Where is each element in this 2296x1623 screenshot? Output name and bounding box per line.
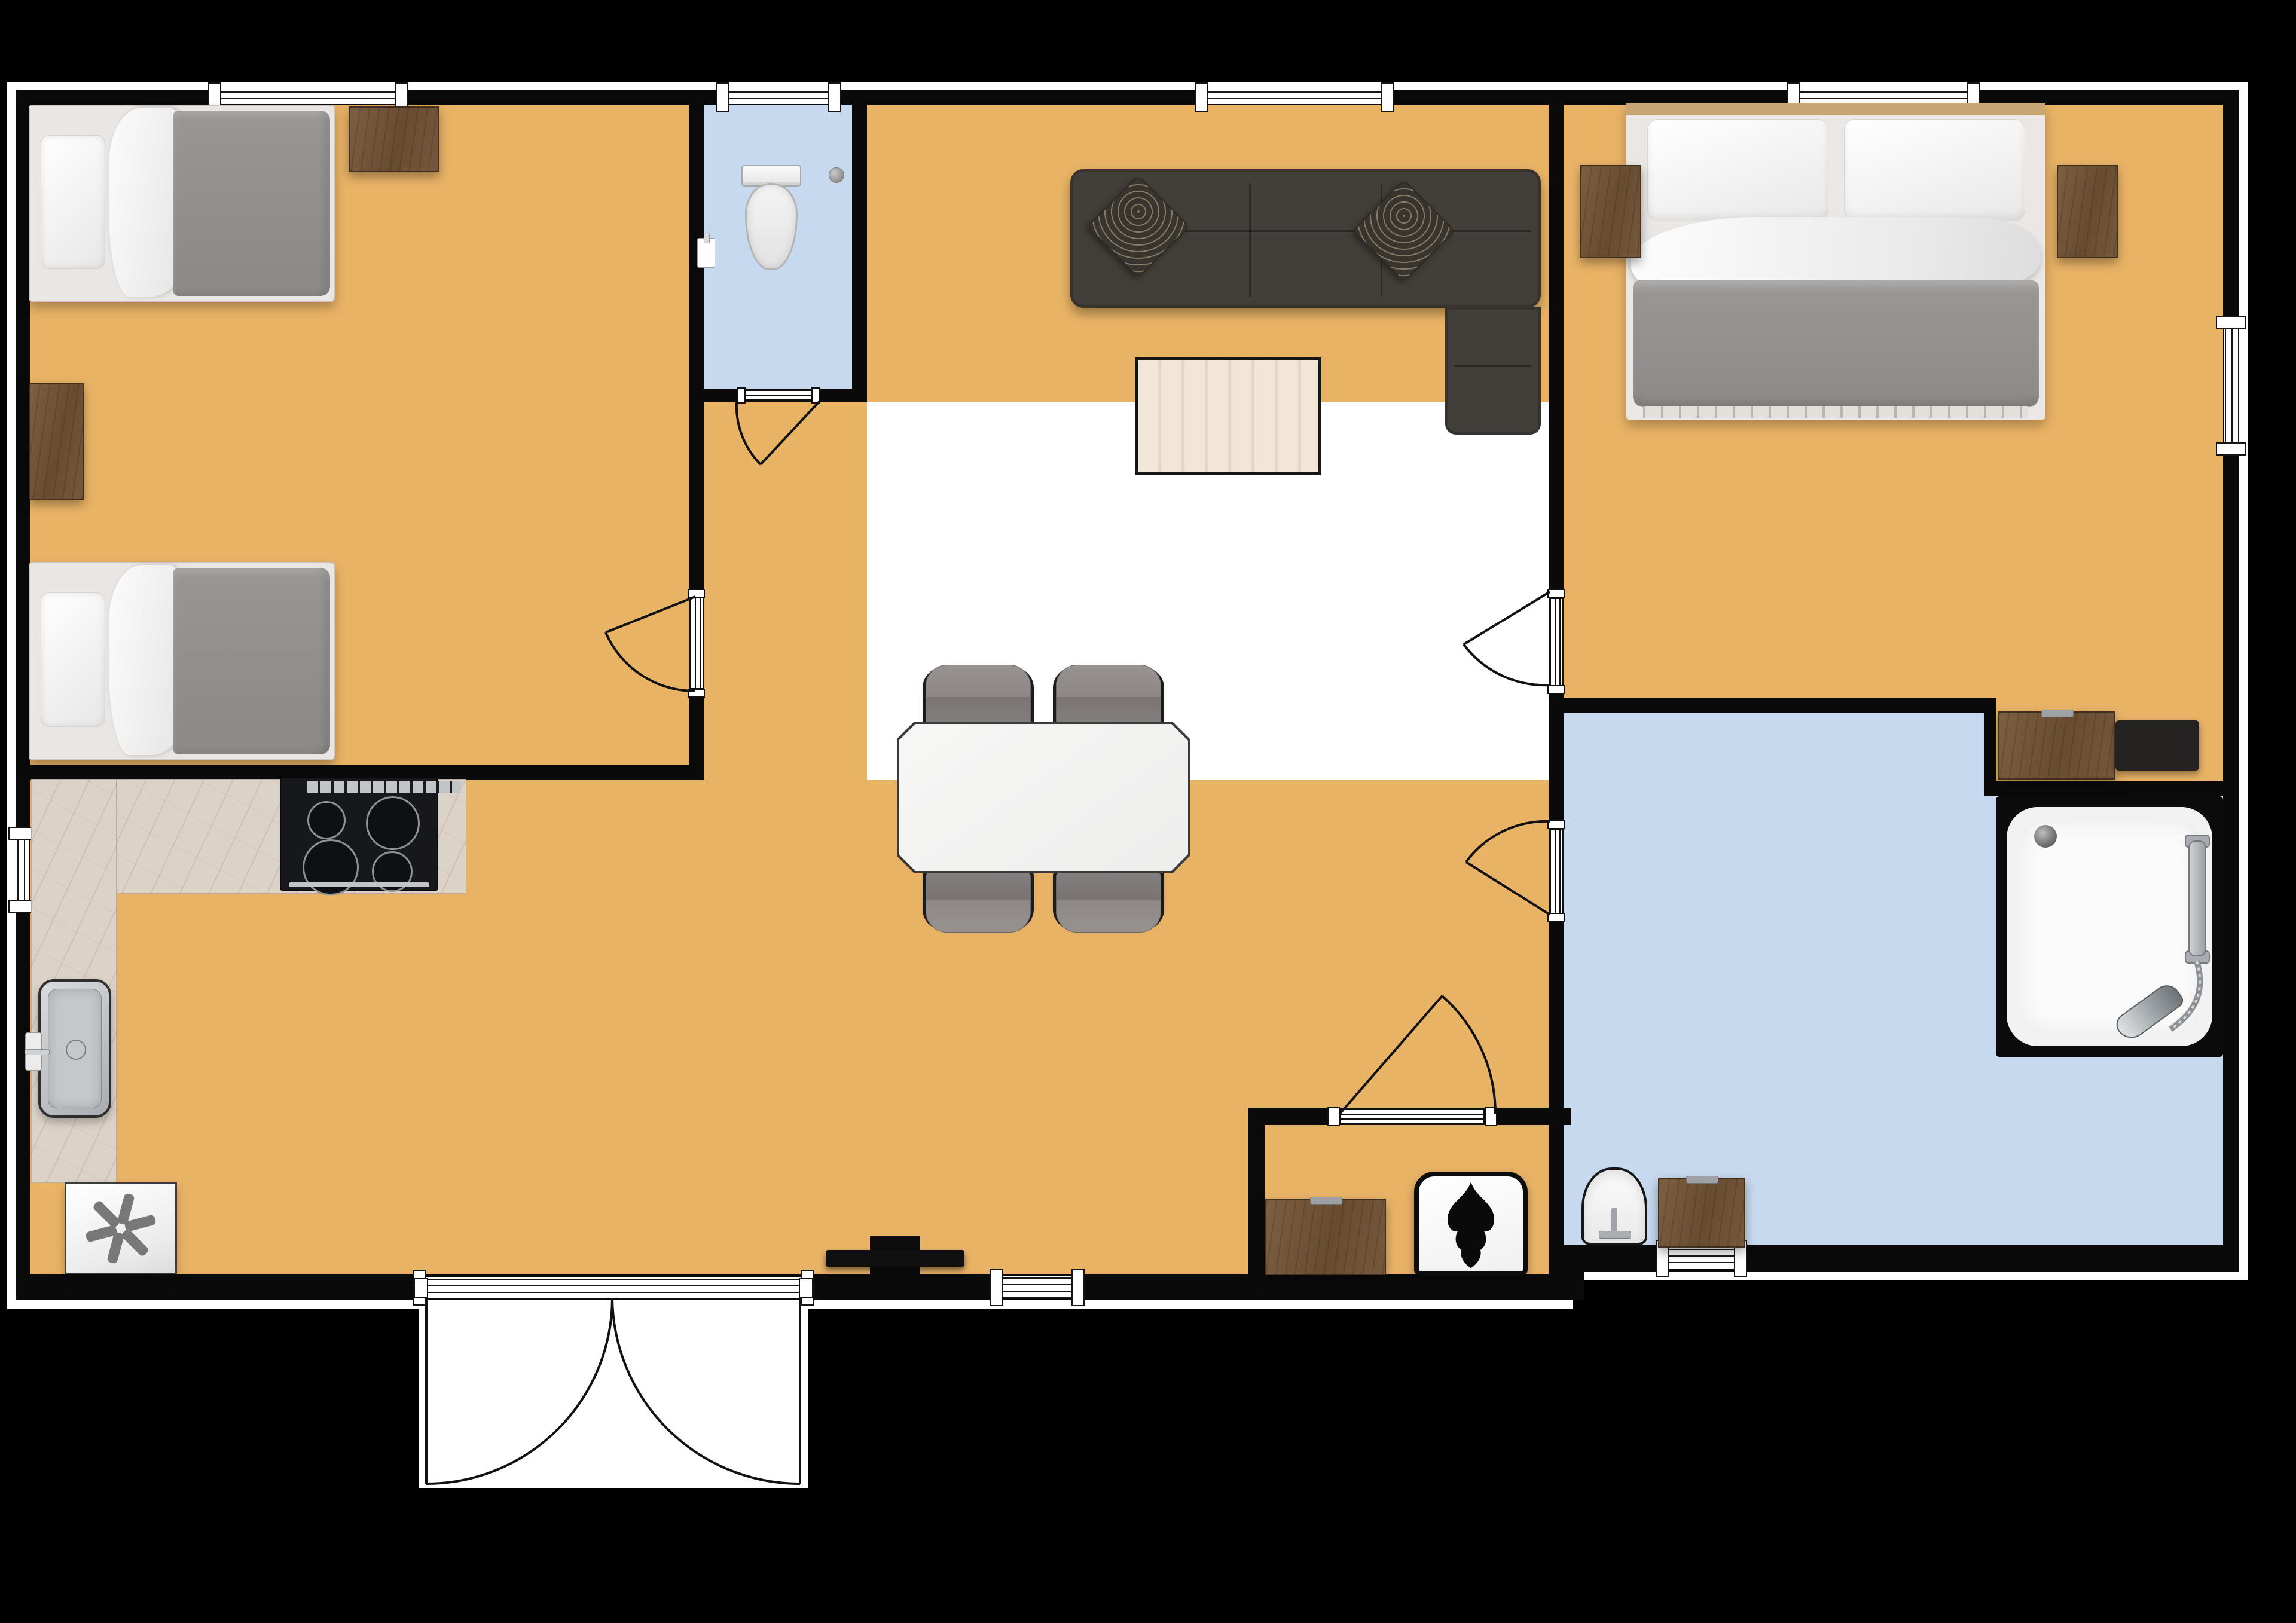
stove-knobs [281, 778, 485, 796]
dining-table [897, 722, 1190, 873]
door-frame-tech-left [1327, 1107, 1340, 1126]
door-frame-bedroom2-bottom [1547, 685, 1565, 694]
boiler [1414, 1172, 1528, 1276]
bed-foot [1643, 406, 2028, 418]
chair-mat-bedroom2 [2115, 720, 2199, 771]
double-bed [1626, 103, 2045, 420]
desk-technical-room [1265, 1199, 1386, 1275]
floor-hallway [703, 402, 867, 780]
sofa-chaise [1445, 307, 1541, 435]
window-top-wc [717, 86, 840, 108]
door-slab-bedroom1 [689, 597, 704, 689]
wall-bedroom1-vert-upper [689, 105, 704, 595]
wall-bedroom2-bottom [1564, 698, 1991, 713]
door-frame-bedroom1-bottom [688, 689, 705, 698]
wall-right [2223, 90, 2239, 1272]
single-bed-1 [29, 105, 335, 302]
duvet [173, 568, 330, 754]
headboard [1626, 103, 2045, 115]
window-right-bedroom2 [2219, 317, 2243, 454]
wall-wc-bottom-b [820, 389, 867, 402]
dresser-bedroom1 [29, 383, 84, 500]
bathroom-sink [1581, 1167, 1647, 1245]
door-frame-bathroom-bottom [1547, 913, 1565, 922]
kitchen-sink [38, 979, 111, 1118]
dining-chair-top-right [1056, 665, 1161, 727]
door-frame-bedroom2-top [1547, 589, 1565, 598]
wall-tech-left [1248, 1108, 1265, 1274]
bathroom-cabinet [1658, 1178, 1745, 1248]
oven-handle [289, 882, 429, 887]
floor-plan [0, 0, 2296, 1623]
duvet [173, 111, 330, 296]
fan-icon [66, 1184, 175, 1273]
wall-nook-bottom [1991, 781, 2223, 796]
door-slab-bathroom [1549, 829, 1564, 914]
pillow-left [1647, 119, 1828, 222]
wc-floor-drain [829, 167, 844, 183]
dining-chair-top-left [926, 665, 1031, 727]
burner-large-1 [366, 796, 420, 850]
pillow-right [1844, 119, 2025, 222]
door-frame-wc-right [811, 387, 820, 404]
duvet [1633, 280, 2039, 407]
door-slab-tech [1339, 1108, 1485, 1125]
single-bed-2 [29, 562, 335, 760]
faucet [25, 1032, 42, 1071]
nightstand-bedroom2-right [2057, 165, 2118, 258]
burner-small-1 [307, 801, 346, 839]
window-bottom-living [991, 1272, 1083, 1303]
pillow [41, 592, 106, 727]
wall-main-vert-a [1549, 105, 1564, 589]
desk-bedroom2 [1998, 711, 2115, 780]
toilet-paper-holder [697, 238, 715, 268]
wall-wc-right [852, 105, 867, 402]
sink-basin [48, 989, 102, 1108]
entry-door-sill [414, 1273, 813, 1302]
window-left-kitchen [12, 828, 33, 912]
window-bottom-bathroom [1657, 1243, 1746, 1273]
wall-left [16, 90, 30, 1300]
dining-chair-bottom-left [926, 870, 1031, 933]
door-slab-wc [745, 389, 812, 402]
door-frame-bedroom1-top [688, 589, 705, 598]
nightstand-bedroom2-left [1580, 165, 1641, 258]
wall-wc-bottom-a [703, 389, 737, 402]
nightstand-bedroom1 [349, 106, 439, 172]
wall-main-vert-b [1549, 687, 1564, 820]
shower [1996, 796, 2223, 1057]
washing-machine [65, 1182, 177, 1274]
dining-chair-bottom-right [1056, 870, 1161, 933]
shower-hose [1996, 796, 2223, 1057]
door-frame-wc-left [737, 387, 746, 404]
entry-door-frame-right [799, 1278, 813, 1298]
wall-tech-top-b [1497, 1108, 1571, 1125]
window-top-living [1196, 86, 1393, 108]
door-slab-bedroom2 [1549, 598, 1564, 686]
tv [826, 1250, 964, 1267]
wall-bedroom1-vert-lower [689, 692, 704, 780]
stove [280, 777, 438, 891]
desk-technical-room-handle [1310, 1197, 1342, 1205]
bathroom-cabinet-handle [1686, 1176, 1718, 1184]
faucet-handle [1599, 1231, 1631, 1239]
rug [1135, 357, 1321, 475]
entry-swing-zone [419, 1300, 808, 1488]
entry-door-frame-left [414, 1278, 428, 1298]
desk-bedroom2-handle [2041, 710, 2074, 717]
door-frame-tech-right [1485, 1107, 1497, 1126]
pillow [41, 135, 106, 269]
table-top [899, 724, 1188, 871]
flame-icon [1419, 1176, 1523, 1271]
door-frame-bathroom-top [1547, 820, 1565, 829]
wall-main-vert-c [1549, 916, 1564, 1274]
